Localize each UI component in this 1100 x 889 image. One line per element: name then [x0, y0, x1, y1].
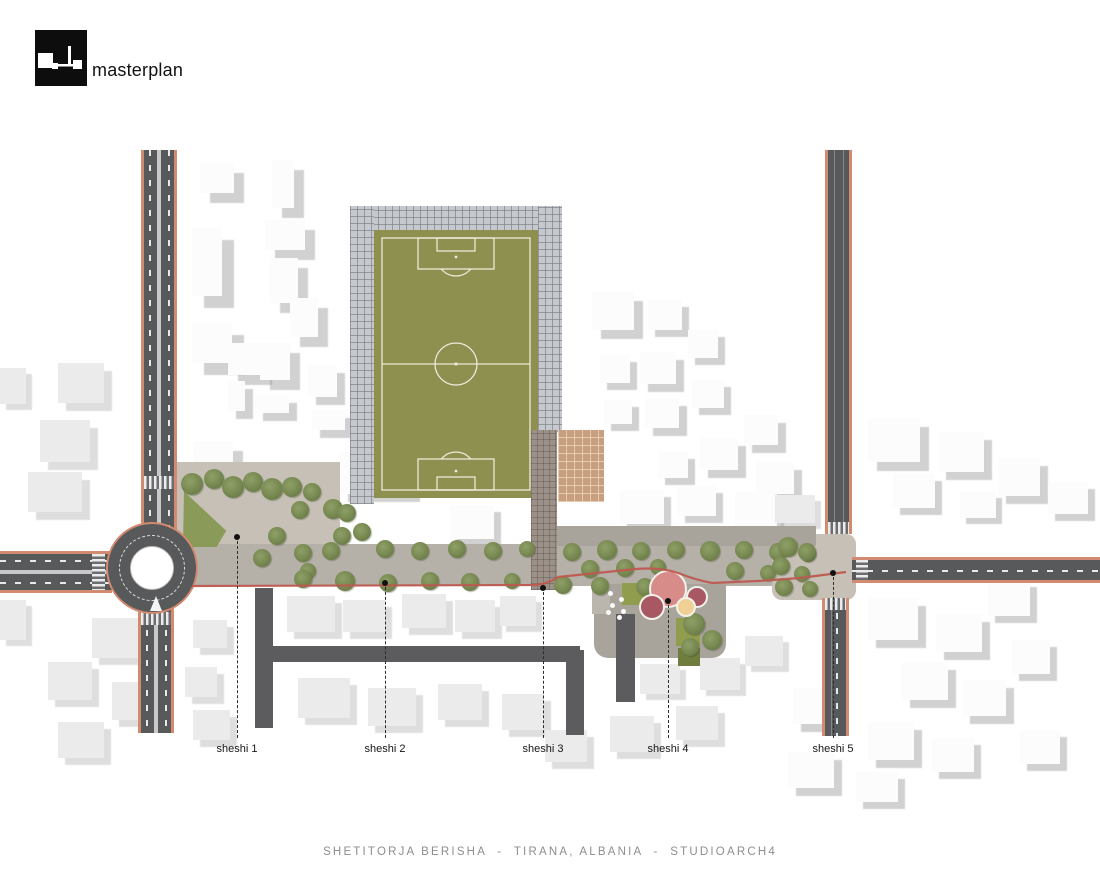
building: [193, 710, 230, 740]
tree: [333, 527, 351, 545]
table-dot: [608, 591, 613, 596]
building: [185, 667, 217, 697]
building: [192, 228, 222, 296]
lane-line: [831, 598, 832, 736]
building: [1020, 730, 1060, 764]
crosswalk: [825, 598, 846, 610]
marker-leader-line: [668, 605, 669, 738]
building: [265, 220, 305, 250]
tree: [282, 477, 302, 497]
marker-label: sheshi 1: [197, 743, 277, 755]
building: [308, 365, 337, 397]
building: [645, 398, 679, 428]
crosswalk: [828, 522, 849, 534]
east-road: [852, 557, 1100, 583]
building: [0, 600, 26, 640]
stadium-stand-east: [538, 206, 562, 432]
play-circle: [676, 597, 696, 617]
building: [592, 292, 634, 330]
roundabout-island: [130, 546, 174, 590]
tree: [461, 573, 479, 591]
tree: [294, 570, 312, 588]
building: [640, 664, 680, 694]
tree: [632, 542, 650, 560]
marker-label: sheshi 4: [628, 743, 708, 755]
building: [312, 410, 345, 430]
building: [856, 772, 898, 802]
tree: [268, 527, 286, 545]
tree: [376, 540, 394, 558]
building: [500, 596, 536, 626]
building: [290, 298, 318, 337]
stadium-stand-north: [350, 206, 562, 232]
tree: [802, 581, 818, 597]
roundabout: [106, 522, 198, 614]
pitch-markings: [374, 230, 538, 498]
south-road-east-leg: [566, 650, 584, 735]
crosswalk: [92, 554, 105, 590]
south-road-horizontal: [255, 646, 580, 662]
tree: [597, 540, 617, 560]
lane-dashes: [852, 570, 1100, 572]
studio-logo-icon: [35, 30, 87, 86]
tree: [519, 541, 535, 557]
building: [868, 418, 920, 462]
building: [932, 738, 974, 772]
building: [962, 680, 1006, 716]
building: [192, 323, 232, 363]
west-avenue-south: [138, 600, 174, 733]
crosswalk: [856, 560, 868, 580]
tree: [294, 544, 312, 562]
building: [648, 300, 682, 330]
east-avenue-south: [822, 598, 849, 736]
building: [368, 688, 416, 726]
building: [604, 400, 632, 424]
building: [28, 472, 82, 512]
building: [58, 363, 104, 403]
tree: [702, 630, 722, 650]
football-pitch: [374, 230, 538, 498]
building: [700, 658, 740, 690]
building: [438, 684, 482, 720]
marker-leader-line: [543, 592, 544, 738]
building: [228, 381, 245, 411]
building: [678, 486, 716, 516]
marker-dot: [665, 598, 671, 604]
building: [735, 492, 777, 526]
building: [48, 662, 92, 700]
crosswalk: [141, 612, 171, 625]
building: [744, 415, 778, 445]
tree: [775, 578, 793, 596]
marker-leader-line: [833, 577, 834, 738]
building: [620, 490, 664, 524]
lane-line: [834, 150, 835, 534]
lane-dashes: [836, 598, 838, 736]
lane-dashes: [149, 150, 151, 530]
building: [402, 594, 446, 628]
tree: [421, 572, 439, 590]
building: [692, 380, 724, 408]
marker-dot: [830, 570, 836, 576]
building: [600, 355, 630, 383]
tree: [504, 573, 520, 589]
building: [450, 505, 494, 539]
building: [938, 432, 984, 472]
west-arm-road: [0, 551, 112, 593]
building: [868, 722, 914, 760]
tree: [338, 504, 356, 522]
building: [998, 458, 1040, 496]
drawing-caption: SHETITORJA BERISHA - TIRANA, ALBANIA - S…: [0, 846, 1100, 858]
tree: [484, 542, 502, 560]
page-title: masterplan: [92, 60, 183, 81]
stadium-walkway: [531, 430, 557, 590]
tree: [798, 543, 816, 561]
tree: [667, 541, 685, 559]
marker-dot: [540, 585, 546, 591]
building: [270, 258, 298, 303]
building: [193, 620, 227, 648]
crosswalk: [144, 476, 174, 489]
table-dot: [606, 610, 611, 615]
east-avenue-north: [825, 150, 852, 534]
table-dot: [610, 603, 615, 608]
lane-line: [843, 150, 844, 534]
building: [700, 438, 738, 470]
building: [658, 452, 688, 478]
tree: [303, 483, 321, 501]
building: [272, 160, 294, 208]
site-plan: sheshi 1sheshi 2sheshi 3sheshi 4sheshi 5: [0, 0, 1100, 889]
building: [40, 420, 90, 462]
building: [676, 706, 718, 740]
tree: [616, 559, 634, 577]
stadium-stand-west: [350, 206, 374, 504]
building: [775, 495, 815, 523]
masterplan-canvas: masterplan: [0, 0, 1100, 889]
building: [688, 330, 718, 358]
building: [960, 492, 996, 518]
building: [893, 474, 935, 508]
marker-label: sheshi 5: [793, 743, 873, 755]
building: [1012, 640, 1050, 674]
sand-court: [558, 430, 604, 502]
tree: [353, 523, 371, 541]
west-avenue-north: [141, 150, 177, 530]
tree: [204, 469, 224, 489]
play-circle: [639, 594, 665, 620]
building: [255, 395, 289, 413]
tree: [253, 549, 271, 567]
logo-glyph: [35, 30, 87, 86]
building: [756, 462, 794, 494]
tree: [335, 571, 355, 591]
table-dot: [617, 615, 622, 620]
lane-dashes: [168, 150, 170, 530]
tree: [554, 576, 572, 594]
tree: [448, 540, 466, 558]
marker-label: sheshi 2: [345, 743, 425, 755]
building: [58, 722, 104, 758]
building: [1048, 482, 1088, 514]
plaza-4-access-road: [616, 614, 635, 702]
marker-label: sheshi 3: [503, 743, 583, 755]
tree: [411, 542, 429, 560]
marker-leader-line: [385, 587, 386, 738]
tree: [291, 501, 309, 519]
tree: [726, 562, 744, 580]
building: [200, 163, 234, 193]
marker-leader-line: [237, 541, 238, 738]
building: [868, 598, 918, 640]
building: [260, 343, 290, 380]
tree: [581, 560, 599, 578]
tree: [772, 557, 790, 575]
tree: [322, 542, 340, 560]
building: [0, 368, 26, 404]
building: [640, 352, 676, 384]
building: [92, 618, 140, 658]
tree: [700, 541, 720, 561]
building: [988, 580, 1030, 616]
building: [936, 614, 982, 652]
building: [902, 662, 948, 700]
tree: [735, 541, 753, 559]
tree: [181, 473, 203, 495]
tree: [563, 543, 581, 561]
tree: [681, 638, 699, 656]
building: [298, 678, 350, 718]
building: [228, 343, 262, 375]
building: [788, 752, 834, 788]
tree: [222, 476, 244, 498]
building: [343, 600, 385, 632]
building: [745, 636, 783, 666]
marker-dot: [234, 534, 240, 540]
tree: [794, 566, 810, 582]
building: [455, 600, 495, 632]
tree: [778, 537, 798, 557]
marker-dot: [382, 580, 388, 586]
building: [287, 596, 335, 632]
table-dot: [619, 597, 624, 602]
tree: [261, 478, 283, 500]
tree: [591, 577, 609, 595]
building: [502, 694, 544, 730]
tree: [243, 472, 263, 492]
table-dot: [621, 609, 626, 614]
road-median: [157, 150, 161, 530]
